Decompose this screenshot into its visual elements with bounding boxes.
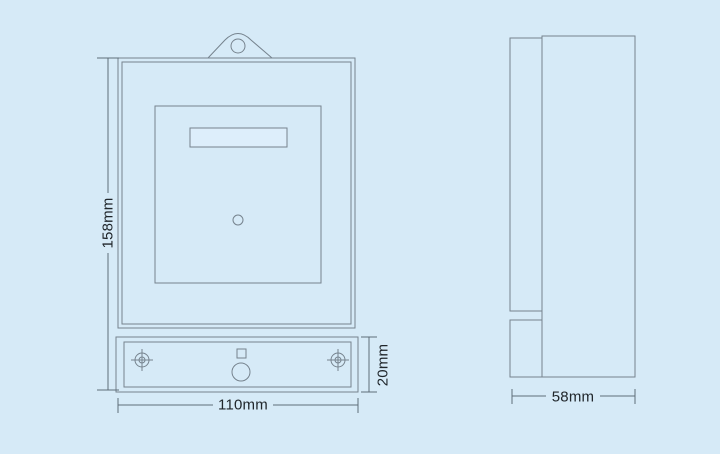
technical-drawing-canvas: 158mm 110mm 20mm 58mm [0,0,720,454]
side-view-front-cover-profile [510,38,542,311]
drawing-lines-group [116,34,635,393]
panel-button [233,215,243,225]
dimension-depth-label: 58mm [552,389,594,406]
dimension-terminal-height-label: 20mm [375,344,392,386]
display-window [190,128,287,147]
hanger-tab [208,34,272,59]
hanger-hole [231,39,245,53]
energy-meter-dimension-diagram: 158mm 110mm 20mm 58mm [0,0,720,454]
meter-case-outline [118,58,355,328]
terminal-screw-left [131,349,153,371]
dimension-width-label: 110mm [218,397,268,414]
side-view [510,36,635,377]
indicator-square [237,349,246,358]
terminal-screw-right [327,349,349,371]
dimension-lines-group [97,58,635,413]
meter-case-inner-frame [122,62,351,324]
front-view [116,34,358,393]
side-view-terminal-cover-profile [510,320,542,377]
dimension-labels-group: 158mm 110mm 20mm 58mm [100,197,595,413]
side-view-body [542,36,635,377]
dimension-height-label: 158mm [100,197,117,248]
seal-circle [232,363,250,381]
